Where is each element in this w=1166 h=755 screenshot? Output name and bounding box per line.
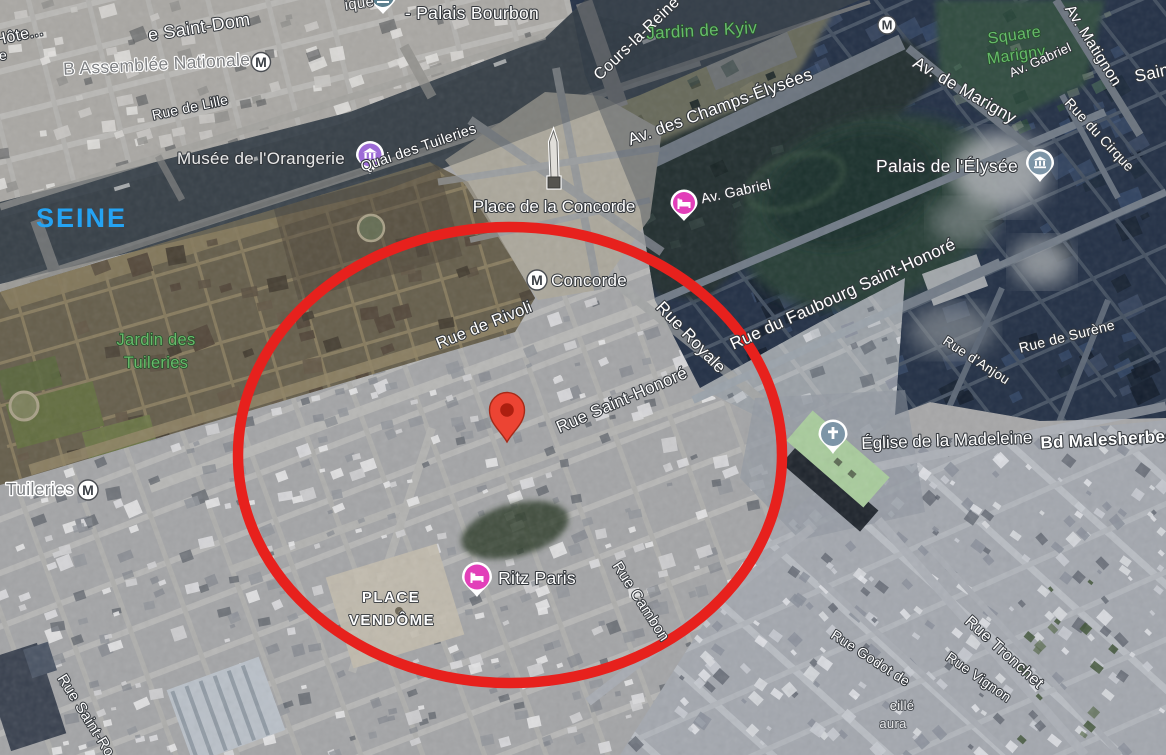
svg-text:Tuileries: Tuileries: [6, 479, 74, 499]
svg-text:eillé: eillé: [890, 698, 915, 713]
svg-text:Palais de l'Élysée: Palais de l'Élysée: [876, 156, 1018, 176]
svg-text:SEINE: SEINE: [36, 203, 127, 233]
svg-text:VENDÔME: VENDÔME: [349, 611, 435, 629]
svg-text:Place de la Concorde: Place de la Concorde: [473, 197, 636, 216]
svg-text:- Palais Bourbon: - Palais Bourbon: [405, 3, 539, 23]
svg-text:aura: aura: [879, 716, 907, 731]
svg-text:Concorde: Concorde: [551, 271, 627, 290]
svg-text:PLACE: PLACE: [362, 589, 420, 606]
svg-text:e: e: [0, 47, 7, 63]
svg-text:Tuileries: Tuileries: [124, 354, 188, 372]
svg-text:Jardin des: Jardin des: [116, 331, 195, 349]
svg-text:Musée de l'Orangerie: Musée de l'Orangerie: [177, 149, 345, 168]
svg-text:M: M: [531, 272, 543, 288]
svg-text:M: M: [882, 18, 893, 33]
svg-text:M: M: [82, 482, 94, 498]
svg-text:M: M: [255, 54, 267, 70]
svg-text:Ritz Paris: Ritz Paris: [498, 568, 576, 588]
